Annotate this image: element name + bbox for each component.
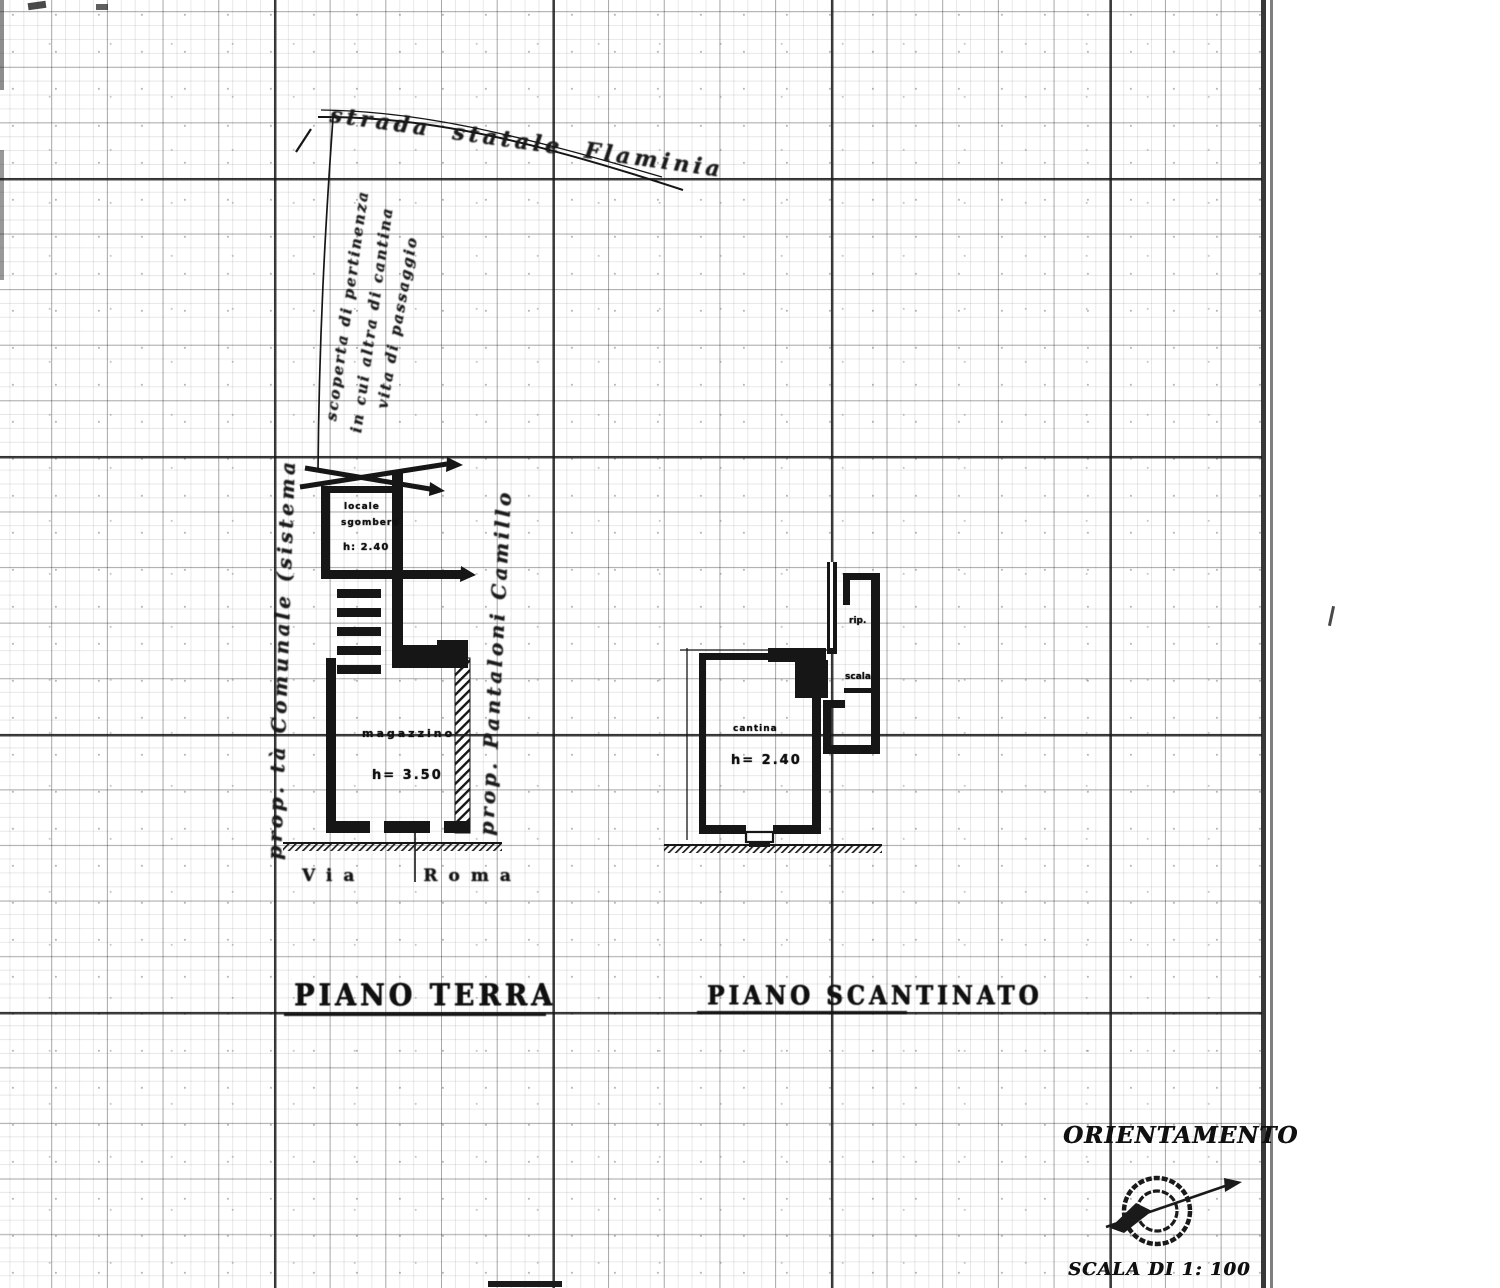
main-room-name: magazzino bbox=[362, 727, 455, 740]
street-name: ViaRoma bbox=[302, 866, 522, 886]
scanned-floor-plan-sheet: strada statale Flaminia scoperta di pert… bbox=[0, 0, 1500, 1288]
street-word-roma: Roma bbox=[423, 866, 521, 886]
orientation-label: ORIENTAMENTO bbox=[1063, 1122, 1298, 1149]
basement-title-text: PIANO SCANTINATO bbox=[707, 980, 1042, 1010]
street-word-via: Via bbox=[302, 866, 365, 886]
annex-room-2: scala bbox=[845, 672, 871, 682]
annex-room-1: rip. bbox=[849, 616, 866, 626]
cellar-height: h= 2.40 bbox=[731, 753, 802, 768]
basement-plan bbox=[664, 562, 882, 853]
basement-title: PIANO SCANTINATO bbox=[697, 982, 907, 1014]
upper-room-line2: sgombero bbox=[341, 518, 400, 528]
cellar-name: cantina bbox=[733, 724, 778, 734]
upper-room-line1: locale bbox=[344, 502, 380, 512]
main-room-height: h= 3.50 bbox=[372, 768, 443, 783]
upper-room-height: h: 2.40 bbox=[343, 542, 389, 553]
ground-floor-title: PIANO TERRA bbox=[284, 980, 546, 1016]
plan-linework bbox=[0, 0, 1500, 1288]
compass-icon bbox=[1106, 1178, 1242, 1244]
scale-label: SCALA DI 1: 100 bbox=[1068, 1259, 1250, 1280]
ground-floor-title-text: PIANO TERRA bbox=[294, 978, 556, 1013]
